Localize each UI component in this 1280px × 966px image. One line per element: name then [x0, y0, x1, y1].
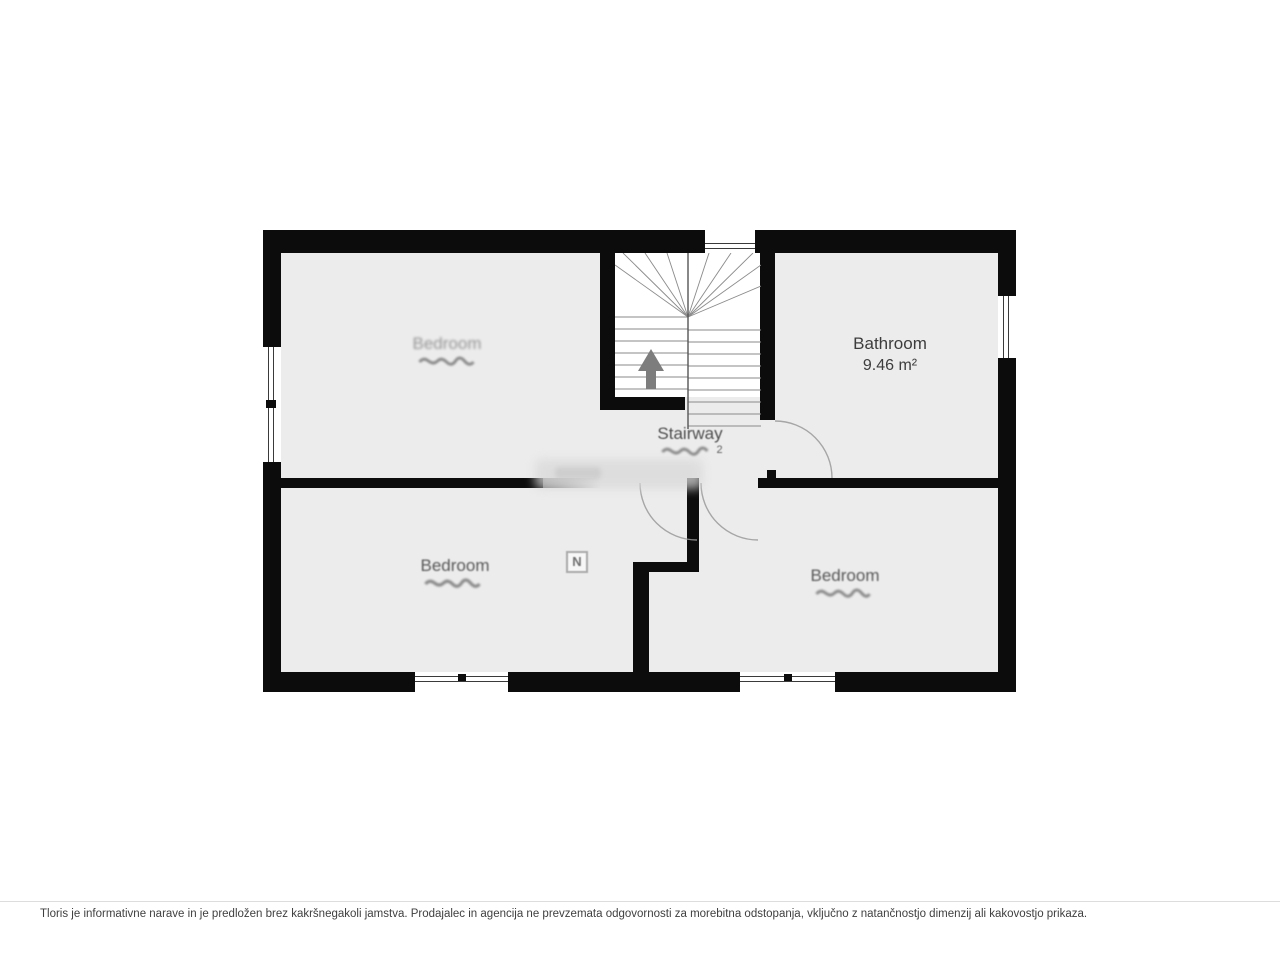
room-name: Bedroom [811, 566, 880, 586]
room-name: Bedroom [421, 556, 490, 576]
room-label-stairway: Stairway 2 [657, 424, 722, 457]
room-label-bedroom-bottom-right: Bedroom [811, 566, 880, 599]
room-name: Stairway [657, 424, 722, 444]
room-name: Bathroom [853, 334, 927, 354]
room-name: Bedroom [413, 334, 482, 354]
north-compass-icon: N [566, 551, 588, 573]
floorplan [263, 230, 1016, 692]
disclaimer-text: Tloris je informativne narave in je pred… [40, 908, 1240, 920]
smudged-area-text [424, 577, 486, 589]
smudged-area-text [815, 587, 875, 599]
door-arc-bathroom [775, 421, 832, 478]
door-arc-bedroom-left [640, 483, 697, 540]
footer-divider [0, 901, 1280, 902]
smudged-area-text [418, 355, 476, 367]
blur-artifact [555, 467, 601, 479]
area-superscript: 2 [716, 444, 722, 456]
room-label-bathroom: Bathroom 9.46 m² [853, 334, 927, 376]
room-area: 9.46 m² [853, 356, 927, 376]
floorplan-page: Bedroom Stairway 2 Bathroom 9.46 m² Bedr… [0, 0, 1280, 966]
door-arc-bedroom-right [701, 483, 758, 540]
room-label-bedroom-top-left: Bedroom [413, 334, 482, 367]
smudged-area-text [660, 445, 712, 457]
room-label-bedroom-bottom-left: Bedroom [421, 556, 490, 589]
